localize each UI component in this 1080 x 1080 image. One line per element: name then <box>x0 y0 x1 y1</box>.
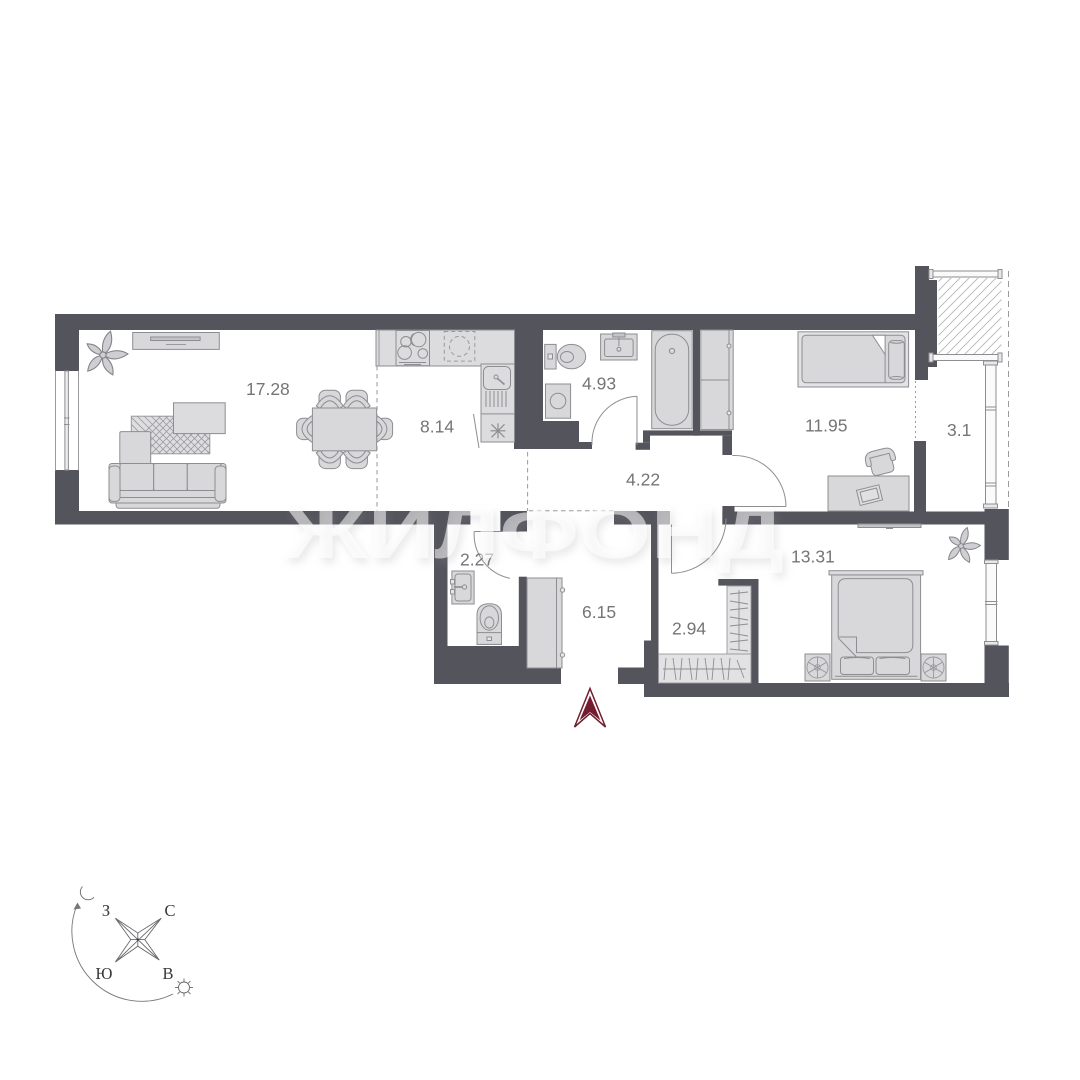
svg-text:8.14: 8.14 <box>420 417 454 437</box>
svg-text:11.95: 11.95 <box>805 416 848 436</box>
svg-text:4.93: 4.93 <box>582 374 616 394</box>
svg-text:6.15: 6.15 <box>582 602 616 622</box>
svg-text:З: З <box>102 901 110 920</box>
svg-text:Ю: Ю <box>96 964 113 983</box>
svg-text:13.31: 13.31 <box>791 547 835 567</box>
svg-text:3.1: 3.1 <box>947 420 971 440</box>
svg-text:2.94: 2.94 <box>672 619 706 639</box>
svg-text:В: В <box>162 964 173 983</box>
svg-text:17.28: 17.28 <box>246 379 290 399</box>
svg-text:ЖИЛФОНД: ЖИЛФОНД <box>283 491 784 574</box>
svg-text:С: С <box>164 901 175 920</box>
svg-text:4.22: 4.22 <box>626 470 660 490</box>
